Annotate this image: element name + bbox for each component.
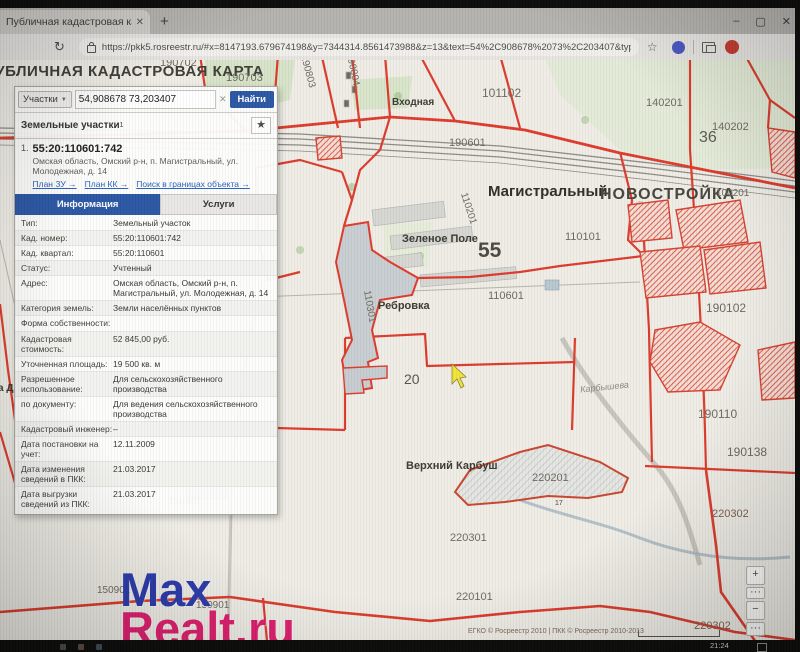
- search-input[interactable]: [75, 90, 216, 109]
- address-bar[interactable]: https://pkk5.rosreestr.ru/#x=8147193.679…: [79, 38, 639, 56]
- map-label: 110101: [565, 231, 601, 243]
- map-label: НОВОСТРОЙКА: [600, 186, 735, 204]
- map-label: Магистральный: [488, 183, 608, 200]
- screen-bezel-right: [795, 0, 800, 652]
- results-count-sup: 1: [120, 122, 124, 129]
- find-button[interactable]: Найти: [230, 91, 274, 108]
- clock: 21:24: [710, 641, 729, 650]
- map-label: 20: [404, 371, 420, 387]
- watermark-line2: Realt.ru: [120, 610, 295, 640]
- info-row: Кадастровая стоимость:52 845,00 руб.: [15, 331, 277, 356]
- parcel-links: План ЗУ →План КК →Поиск в границах объек…: [33, 179, 271, 189]
- search-bar: Участки ▼ ✕ Найти: [15, 87, 277, 113]
- info-row: Кадастровый инженер:–: [15, 421, 277, 436]
- map-label: Зеленое Поле: [402, 233, 478, 245]
- map-label: 190102: [706, 301, 746, 315]
- browser-toolbar: ↻ https://pkk5.rosreestr.ru/#x=8147193.6…: [0, 34, 795, 60]
- favorites-star-icon[interactable]: ★: [251, 117, 271, 134]
- info-row: Адрес:Омская область, Омский р-н, п. Маг…: [15, 275, 277, 300]
- map-label: 220201: [532, 472, 569, 484]
- results-title: Земельные участки: [21, 120, 120, 131]
- info-row: Кад. квартал:55:20:110601: [15, 245, 277, 260]
- screen-bezel-top: [0, 0, 800, 8]
- taskbar-window-icon: [757, 643, 767, 652]
- parcel-link[interactable]: План ЗУ →: [33, 179, 77, 189]
- zoom-out-button[interactable]: −: [746, 601, 765, 620]
- map-viewport[interactable]: ПУБЛИЧНАЯ КАДАСТРОВАЯ КАРТА 190702190703…: [0, 60, 795, 640]
- clear-search-icon[interactable]: ✕: [219, 94, 227, 105]
- browser-tab-strip: Публичная кадастровая карта ✕ + – ▢ ✕: [0, 8, 795, 34]
- zoom-options-button[interactable]: ···: [746, 587, 765, 599]
- panel-tabs: Информация Услуги: [15, 194, 277, 215]
- parcel-address: Омская область, Омский р-н, п. Магистрал…: [33, 156, 271, 176]
- url-text: https://pkk5.rosreestr.ru/#x=8147193.679…: [102, 42, 631, 53]
- map-label: 220301: [450, 532, 487, 544]
- toolbar-divider: [693, 40, 694, 54]
- taskbar-icon: [78, 644, 84, 650]
- map-label: Входная: [392, 97, 434, 108]
- info-row: Форма собственности:: [15, 315, 277, 330]
- watermark: Max Realt.ru: [120, 571, 295, 640]
- close-button[interactable]: ✕: [782, 15, 791, 28]
- parcel-info-table: Тип:Земельный участокКад. номер:55:20:11…: [15, 215, 277, 513]
- taskbar-icon: [96, 644, 102, 650]
- info-row: Разрешенное использование:Для сельскохоз…: [15, 371, 277, 396]
- map-label: 17: [555, 500, 563, 507]
- map-label: 110601: [488, 290, 524, 302]
- browser-tab[interactable]: Публичная кадастровая карта ✕: [0, 10, 150, 34]
- info-row: Категория земель:Земли населённых пункто…: [15, 300, 277, 315]
- info-row: Дата выгрузки сведений из ПКК:21.03.2017: [15, 486, 277, 511]
- map-label: 36: [699, 129, 717, 147]
- search-panel: Участки ▼ ✕ Найти Земельные участки 1 ★ …: [14, 86, 278, 515]
- tab-close-icon[interactable]: ✕: [136, 17, 144, 28]
- map-attribution: ЕГКО © Росреестр 2010 | ПКК © Росреестр …: [468, 628, 644, 635]
- map-label: Верхний Карбуш: [406, 460, 498, 472]
- tab-information[interactable]: Информация: [15, 194, 160, 215]
- chevron-down-icon: ▼: [61, 97, 67, 103]
- parcel-number: 55:20:110601:742: [33, 143, 271, 155]
- info-row: Кад. номер:55:20:110601:742: [15, 230, 277, 245]
- profile-icon[interactable]: [672, 41, 685, 54]
- new-tab-button[interactable]: +: [160, 13, 169, 30]
- reload-icon[interactable]: ↻: [54, 39, 65, 55]
- taskbar-strip: [0, 640, 800, 652]
- map-label: 190702: [160, 60, 197, 69]
- browser-window: Публичная кадастровая карта ✕ + – ▢ ✕ ↻ …: [0, 8, 795, 640]
- search-type-dropdown[interactable]: Участки ▼: [18, 91, 72, 108]
- scale-bar: [638, 630, 720, 637]
- info-row: Дата изменения сведений в ПКК:21.03.2017: [15, 461, 277, 486]
- map-label: 220101: [456, 591, 493, 603]
- map-label: 100201: [716, 188, 749, 199]
- info-row: Тип:Земельный участок: [15, 216, 277, 230]
- map-label: 55: [478, 239, 501, 263]
- info-row: Статус:Учтенный: [15, 260, 277, 275]
- map-label: 140202: [712, 121, 749, 133]
- search-type-label: Участки: [23, 94, 58, 105]
- extension-icon[interactable]: [702, 42, 715, 53]
- tab-title: Публичная кадастровая карта: [6, 16, 132, 28]
- maximize-button[interactable]: ▢: [755, 15, 765, 28]
- map-label: 190110: [698, 407, 737, 421]
- map-label: 140201: [646, 97, 683, 109]
- photo-of-screen: Публичная кадастровая карта ✕ + – ▢ ✕ ↻ …: [0, 0, 800, 652]
- zoom-in-button[interactable]: +: [746, 566, 765, 585]
- tab-services[interactable]: Услуги: [160, 194, 277, 215]
- lock-icon: [87, 45, 96, 53]
- avatar-icon[interactable]: [725, 40, 739, 54]
- map-label: 101102: [482, 86, 521, 100]
- parcel-link[interactable]: План КК →: [85, 179, 129, 189]
- map-label: 190601: [449, 137, 486, 149]
- info-row: Уточненная площадь:19 500 кв. м: [15, 356, 277, 371]
- more-tools-button[interactable]: ···: [746, 622, 765, 636]
- cursor-icon: [452, 364, 466, 388]
- bookmark-star-icon[interactable]: ☆: [647, 40, 658, 54]
- parcel-link[interactable]: Поиск в границах объекта →: [136, 179, 250, 189]
- site-title: ПУБЛИЧНАЯ КАДАСТРОВАЯ КАРТА: [0, 63, 264, 80]
- info-row: по документу:Для ведения сельскохозяйств…: [15, 396, 277, 421]
- results-header: Земельные участки 1 ★: [15, 113, 277, 139]
- parcel-list-item[interactable]: 1. 55:20:110601:742 Омская область, Омск…: [15, 139, 277, 192]
- taskbar-icon: [60, 644, 66, 650]
- minimize-button[interactable]: –: [733, 15, 739, 27]
- info-row: Дата постановки на учет:12.11.2009: [15, 436, 277, 461]
- map-label: 220302: [712, 508, 749, 520]
- parcel-index: 1.: [21, 143, 29, 189]
- map-label: 190138: [727, 445, 767, 459]
- map-label: 190703: [226, 72, 263, 84]
- map-label: Ребровка: [378, 300, 430, 312]
